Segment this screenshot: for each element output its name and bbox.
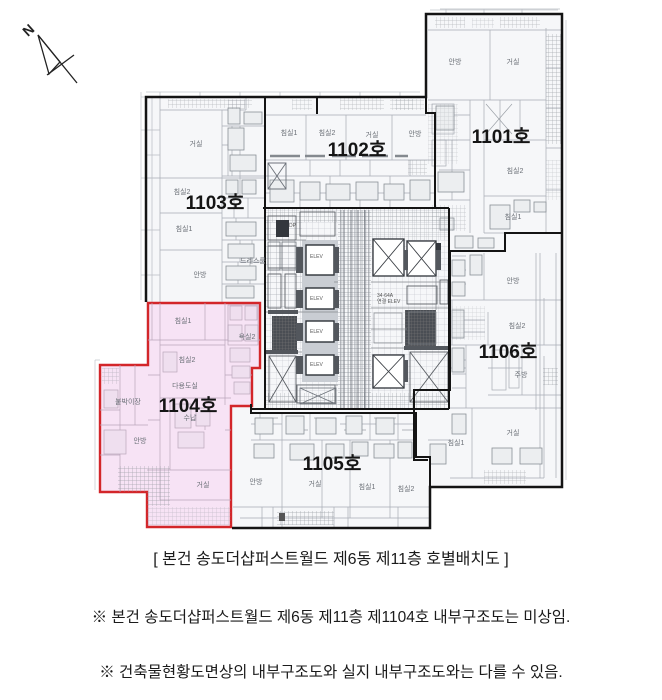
svg-text:침실1: 침실1	[505, 212, 522, 221]
svg-text:침실1: 침실1	[281, 128, 298, 137]
svg-text:침실2: 침실2	[319, 128, 336, 137]
svg-text:안방: 안방	[409, 129, 422, 138]
svg-text:1106호: 1106호	[479, 341, 538, 363]
svg-text:1101호: 1101호	[472, 126, 531, 148]
svg-text:침실1: 침실1	[359, 482, 376, 491]
svg-text:안방: 안방	[449, 57, 462, 66]
svg-text:침실2: 침실2	[398, 484, 415, 493]
svg-text:거실: 거실	[507, 428, 520, 437]
svg-text:거실: 거실	[197, 480, 210, 489]
svg-text:※ 건축물현황도면상의 내부구조도와 실지 내부구조도와는: ※ 건축물현황도면상의 내부구조도와 실지 내부구조도와는 다를 수 있음.	[99, 663, 563, 681]
svg-text:주방: 주방	[515, 370, 528, 379]
svg-text:ELEV: ELEV	[310, 362, 323, 368]
svg-text:1102호: 1102호	[328, 139, 387, 161]
svg-text:ELEV: ELEV	[310, 296, 323, 302]
svg-text:거실: 거실	[366, 130, 379, 139]
svg-text:안방: 안방	[134, 436, 147, 445]
svg-text:침실2: 침실2	[179, 355, 196, 364]
svg-text:1103호: 1103호	[186, 192, 245, 214]
svg-text:N: N	[19, 21, 37, 40]
svg-text:[ 본건 송도더샵퍼스트월드 제6동 제11층 호별배치도: [ 본건 송도더샵퍼스트월드 제6동 제11층 호별배치도 ]	[153, 550, 508, 568]
svg-text:안방: 안방	[250, 477, 263, 486]
svg-text:붙박이장: 붙박이장	[115, 397, 141, 406]
svg-text:ELEV: ELEV	[310, 329, 323, 335]
svg-text:다용도실: 다용도실	[172, 381, 198, 390]
svg-text:침실2: 침실2	[507, 166, 524, 175]
svg-text:거실: 거실	[190, 139, 203, 148]
svg-text:연결 ELEV: 연결 ELEV	[377, 298, 401, 305]
svg-text:욕실2: 욕실2	[239, 332, 256, 341]
svg-text:※ 본건 송도더샵퍼스트월드 제6동 제11층 제1104호: ※ 본건 송도더샵퍼스트월드 제6동 제11층 제1104호 내부구조도는 미상…	[92, 608, 571, 626]
svg-text:1104호: 1104호	[159, 395, 218, 417]
svg-text:ELEV: ELEV	[310, 254, 323, 260]
svg-text:드레스룸: 드레스룸	[240, 256, 266, 265]
svg-text:안방: 안방	[194, 270, 207, 279]
svg-text:거실: 거실	[309, 479, 322, 488]
svg-text:침실2: 침실2	[509, 321, 526, 330]
svg-text:침실1: 침실1	[176, 224, 193, 233]
svg-text:침실1: 침실1	[175, 316, 192, 325]
svg-text:침실1: 침실1	[448, 438, 465, 447]
svg-text:DP: DP	[289, 223, 297, 229]
svg-text:1105호: 1105호	[303, 453, 362, 475]
svg-text:거실: 거실	[507, 57, 520, 66]
svg-text:안방: 안방	[507, 276, 520, 285]
